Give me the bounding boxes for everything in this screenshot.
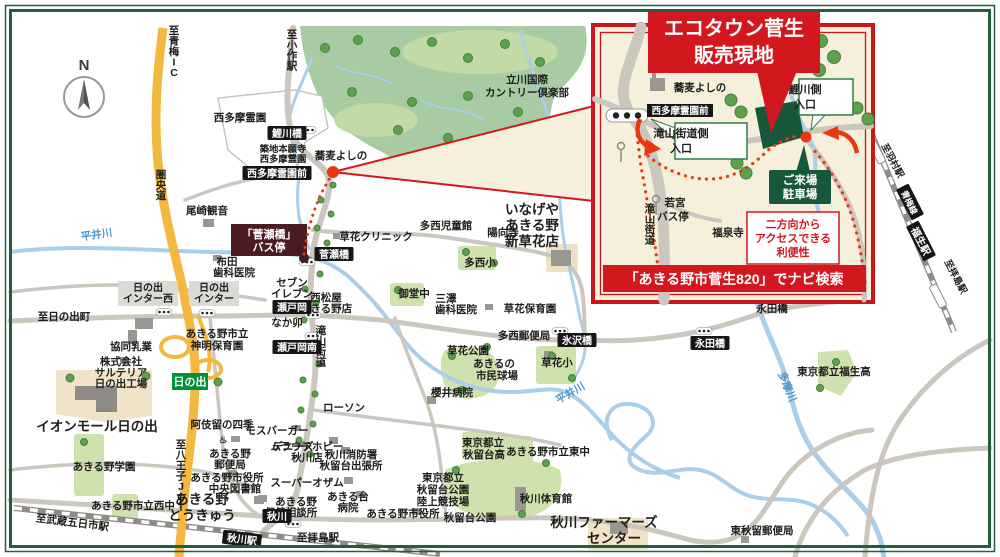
map-label: 歯科医院 [435,303,477,316]
map-label: 秋川ファーマーズ [550,514,658,530]
map-label: あきる野市立西中 [91,499,175,512]
svg-text:インター: インター [194,293,234,305]
map-label: 東秋留郵便局 [731,524,794,537]
map-label: あきるの [473,357,515,370]
map-label: なか卯 [271,316,303,329]
svg-text:永田橋: 永田橋 [694,337,726,350]
map-label: 草花保育園 [504,302,557,315]
svg-text:日の出: 日の出 [199,281,229,294]
svg-text:日の出: 日の出 [174,375,207,389]
svg-text:利便性: 利便性 [777,245,810,259]
svg-text:ご来場: ご来場 [783,173,818,187]
navi-search-banner: 「あきる野市菅生820」でナビ検索 [603,265,866,292]
map-label: 蕎麦よしの [673,81,727,94]
svg-text:アクセスできる: アクセスできる [755,232,831,245]
map-label: 至小作駅 [286,29,298,73]
nishitama-reien-mae-badge: 西多摩霊園前 [647,104,713,117]
map-label: 至青梅IC [169,25,180,79]
map-label: いなげや [505,202,559,217]
map-label: 東京都立 [462,436,504,449]
map-badge: 秋川 [263,509,292,523]
map-label: 協同乳業 [110,340,152,353]
map-badge: 永田橋 [691,336,730,350]
map-label: 郵便局 [214,458,246,471]
map-label: イレブン [271,287,313,300]
map-label: 歯科医院 [213,266,255,279]
map-badge: 福生駅 [906,220,936,261]
svg-text:エコタウン菅生: エコタウン菅生 [664,17,804,40]
svg-text:入口: 入口 [670,142,692,155]
map-badge: 菅瀬橋 [315,247,354,261]
svg-text:滝山街道側: 滝山街道側 [654,126,709,140]
map-label: 市民球場 [476,369,518,382]
map-label: 多西郵便局 [498,329,551,342]
map-label: あきる野学園 [73,460,136,473]
map-label: あきる野市立 [186,327,249,340]
map-label: 秋川店 [291,451,323,464]
map-label: カントリー倶楽部 [485,86,569,99]
map-canvas: N 西多摩霊園築地本願寺西多摩霊園蕎麦よしの立川国際カントリー倶楽部至小作駅至青… [0,0,1000,557]
map-label: 多摩川 [775,370,799,404]
map-label: 西多摩霊園 [214,111,267,124]
signal-icon [199,310,215,317]
map-label: 立川国際 [506,73,548,86]
signal-icon [156,309,172,316]
svg-text:日の出: 日の出 [133,281,163,294]
map-label: 多西児童館 [420,219,473,232]
map-label: あきる野市立東中 [506,445,590,458]
map-badge: 瀬戸岡 [273,300,312,314]
map-label: 蕎麦よしの [314,149,368,162]
hinode-ic-badge: 日の出 インター [189,281,239,306]
map-badge: 鯉川橋 [268,126,307,140]
hinode-ic-green-badge: 日の出 [172,373,208,390]
map-label: 草花公園 [447,344,489,357]
svg-text:「菅瀬橋」: 「菅瀬橋」 [242,227,297,241]
svg-text:「あきる野市菅生820」でナビ検索: 「あきる野市菅生820」でナビ検索 [624,271,843,287]
svg-text:N: N [79,57,90,74]
svg-text:瀬戸岡: 瀬戸岡 [277,301,307,314]
map-label: 櫻井病院 [430,386,473,399]
svg-text:西多摩霊園前: 西多摩霊園前 [247,167,307,180]
map-label: 御堂中 [397,287,430,300]
svg-text:秋川: 秋川 [267,510,287,523]
map-badge: 西多摩霊園前 [243,166,312,180]
map-label: 阿伎留の四季 [191,418,254,431]
map-label: 新草花店 [505,233,559,249]
svg-text:鯉川橋: 鯉川橋 [271,127,303,140]
map-label: モスバーガー [246,424,309,437]
svg-text:鯉川側: 鯉川側 [789,82,822,96]
svg-text:インター西: インター西 [123,293,173,305]
map-badge: 瀬戸岡南 [273,340,322,354]
map-label: 平井川 [80,226,113,243]
map-label: 秋川体育館 [520,492,573,505]
sugasebashi-busstop-callout: 「菅瀬橋」 バス停 [231,224,309,263]
map-label: あきる野 [505,218,559,233]
map-label: あきる野市役所 [366,507,440,520]
map-label: バス停 [657,210,689,223]
access-note-box: 二方向から アクセスできる 利便性 [747,212,839,264]
map-label: 至拝島駅 [297,531,339,544]
svg-text:駐車場: 駐車場 [783,187,818,201]
map-label: 秋留台公園 [444,511,497,524]
map-badge: 氷沢橋 [558,333,597,347]
svg-text:瀬戸岡南: 瀬戸岡南 [277,341,317,354]
map-label: 若宮 [664,196,686,209]
map-label: 福泉寺 [711,226,744,239]
map-label: 至拝島駅 [943,257,971,296]
map-label: ♨ [219,435,227,445]
map-label: 秋留台高 [463,448,505,461]
map-label: 築地本願寺 [259,143,307,154]
svg-text:入口: 入口 [794,98,816,111]
map-label: イオンモール日の出 [36,418,158,434]
map-label: 滝山街道 [644,202,656,247]
map-label: 多西小 [464,256,496,269]
compass: N [64,57,104,117]
hinode-ic-west-badge: 日の出 インター西 [118,281,178,306]
map-label: 東京都立 [422,471,464,484]
map-label: 東京都立福生高 [797,365,871,378]
map-label: 圏央道 [156,169,167,202]
site-location-dot [327,166,339,178]
svg-text:二方向から: 二方向から [766,217,821,231]
map-label: 西多摩霊園 [260,153,307,164]
map-label: 秋留台出張所 [320,459,383,472]
map-label: 草花小 [541,356,573,369]
map-label: 神明保育園 [191,339,244,352]
map-page: N 西多摩霊園築地本願寺西多摩霊園蕎麦よしの立川国際カントリー倶楽部至小作駅至青… [0,0,1000,557]
map-label: 病院 [338,501,359,514]
map-label: 至日の出町 [38,310,91,323]
map-label: スーパーオザム [270,477,344,489]
map-label: 秋留台公園 [417,483,470,496]
svg-text:氷沢橋: 氷沢橋 [561,334,593,347]
svg-text:福生駅: 福生駅 [908,224,934,258]
svg-text:バス停: バス停 [253,240,286,254]
map-label: 尾崎観音 [186,204,228,217]
map-label: センター [587,531,641,546]
map-label: 日の出工場 [95,377,148,390]
signal-icon [696,328,712,335]
parking-location-dot [801,132,812,143]
svg-text:販売現地: 販売現地 [694,44,774,67]
map-label: 陸上競技場 [417,495,470,508]
svg-text:西多摩霊園前: 西多摩霊園前 [651,105,709,117]
map-label: 草花クリニック [339,230,413,243]
svg-text:菅瀬橋: 菅瀬橋 [319,248,350,261]
map-label: ローソン [323,402,365,414]
